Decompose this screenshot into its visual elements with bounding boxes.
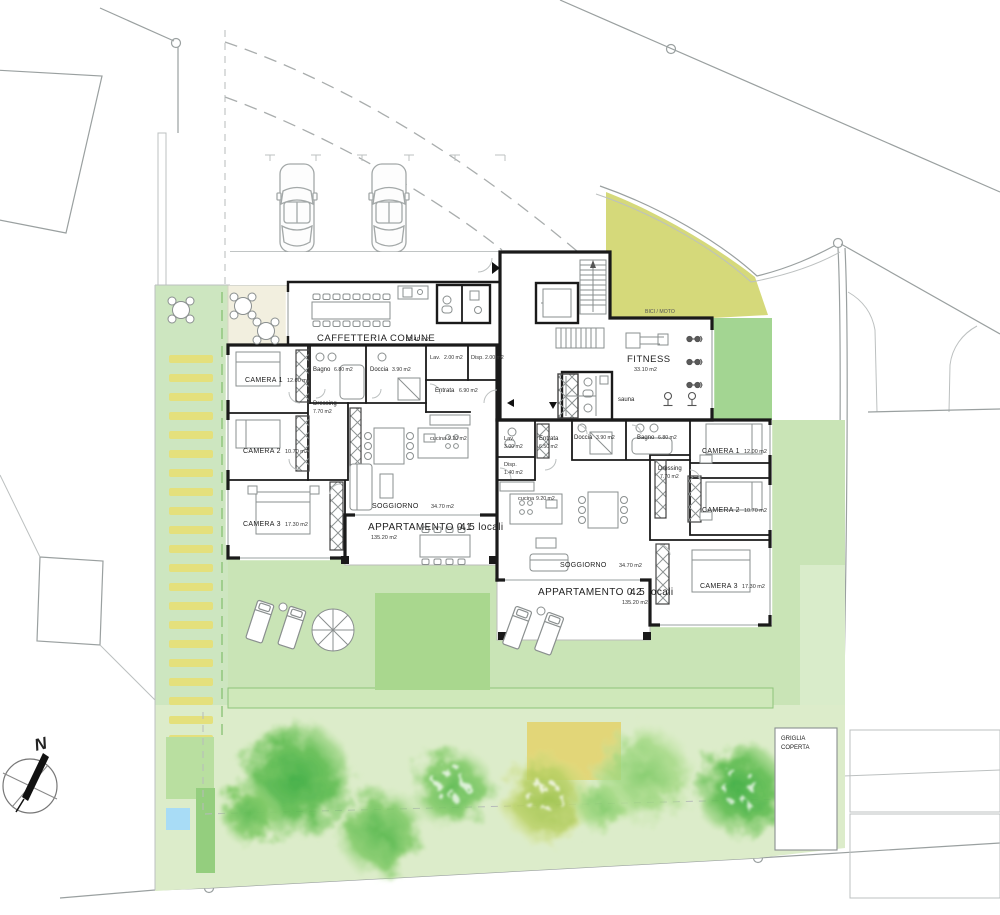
terrace-table bbox=[420, 535, 470, 557]
apt1-cucina-label: cucina bbox=[430, 436, 447, 442]
apt2-cucina-label: cucina bbox=[518, 496, 535, 502]
bed-icon bbox=[236, 420, 280, 448]
apt2-size: 4.5 locali bbox=[630, 587, 673, 598]
apt2-camera3-label: CAMERA 3 bbox=[700, 583, 738, 590]
apt1-cucina-area: 9.20 m2 bbox=[448, 436, 467, 442]
sauna-label: sauna bbox=[618, 397, 635, 403]
apt2-bagno-area: 6.80 m2 bbox=[658, 435, 677, 441]
apt1-doccia-label: Doccia bbox=[370, 367, 389, 373]
griglia-coperta-box: GRIGLIA COPERTA bbox=[775, 728, 1000, 898]
apt2-camera2-label: CAMERA 2 bbox=[702, 507, 740, 514]
apt2-doccia-area: 3.90 m2 bbox=[596, 435, 615, 441]
apt2-bagno-label: Bagno bbox=[637, 435, 655, 441]
apt2-soggiorno-label: SOGGIORNO bbox=[560, 562, 607, 569]
tree-icon bbox=[218, 783, 282, 847]
apt2-entrata-area: 6.50 m2 bbox=[539, 444, 558, 450]
apt1-entrata-label: Entrata bbox=[435, 388, 455, 394]
bici-moto-label: BICI / MOTO bbox=[645, 309, 675, 315]
apt1-soggiorno-label: SOGGIORNO bbox=[372, 503, 419, 510]
kitchen-counter bbox=[430, 415, 470, 425]
parking-stall-marks bbox=[265, 155, 505, 161]
apt2-camera1-label: CAMERA 1 bbox=[702, 448, 740, 455]
fitness-label: FITNESS bbox=[627, 354, 671, 365]
site-plan-drawing: GRIGLIA COPERTA N CAFFETTERIA COMUNE 32.… bbox=[0, 0, 1000, 915]
long-table bbox=[312, 302, 390, 319]
apt1-bagno-label: Bagno bbox=[313, 367, 331, 373]
apt1-size: 4.5 locali bbox=[460, 522, 503, 533]
apt1-dressing-area: 7.70 m2 bbox=[313, 409, 332, 415]
apt1-camera1-area: 12.00 m2 bbox=[287, 378, 310, 384]
apt1-soggiorno-area: 34.70 m2 bbox=[431, 504, 454, 510]
apt1-lav-area: 2.00 m2 bbox=[444, 355, 463, 361]
apt2-disp-area: 1.40 m2 bbox=[504, 470, 523, 476]
apt2-lav-area: 3.00 m2 bbox=[504, 444, 523, 450]
apt2-camera3-area: 17.30 m2 bbox=[742, 584, 765, 590]
apt1-doccia-area: 3.90 m2 bbox=[392, 367, 411, 373]
apt1-camera2-label: CAMERA 2 bbox=[243, 448, 281, 455]
caffetteria-area: 32.40 m2 bbox=[406, 337, 429, 343]
sink-icon bbox=[316, 353, 324, 361]
kitchen-island bbox=[418, 428, 468, 458]
bed-icon bbox=[706, 482, 762, 510]
apt2-soggiorno-area: 34.70 m2 bbox=[619, 563, 642, 569]
apt1-total-area: 135.20 m2 bbox=[371, 535, 397, 541]
dining-table bbox=[588, 492, 618, 528]
apt1-camera3-label: CAMERA 3 bbox=[243, 521, 281, 528]
apt1-camera3-area: 17.30 m2 bbox=[285, 522, 308, 528]
griglia-label-line2: COPERTA bbox=[781, 745, 809, 751]
apt1-title: APPARTAMENTO 0.1 bbox=[368, 522, 472, 533]
north-arrow: N bbox=[3, 733, 57, 813]
dining-table bbox=[374, 428, 404, 464]
apt1-camera2-area: 10.70 m2 bbox=[285, 449, 308, 455]
tree-icon bbox=[570, 775, 630, 835]
apt1-camera1-label: CAMERA 1 bbox=[245, 377, 283, 384]
car-icon bbox=[277, 164, 317, 252]
apt1-entrata-area: 6.90 m2 bbox=[459, 388, 478, 394]
apt1-lav-label: Lav. bbox=[430, 355, 441, 361]
apt1-dressing-label: Dressing bbox=[313, 401, 337, 407]
sofa-icon bbox=[350, 464, 372, 510]
parasol-icon bbox=[312, 609, 354, 651]
north-label: N bbox=[32, 733, 49, 755]
parking-area bbox=[230, 155, 608, 252]
car-icon bbox=[369, 164, 409, 252]
apt2-disp-label: Disp. bbox=[504, 462, 517, 468]
apt2-entrata-label: Entrata bbox=[539, 436, 559, 442]
apt2-cucina-area: 9.20 m2 bbox=[536, 496, 555, 502]
apt2-title: APPARTAMENTO 0.2 bbox=[538, 587, 642, 598]
apt2-doccia-label: Doccia bbox=[574, 435, 593, 441]
kitchen-counter bbox=[500, 482, 534, 491]
apt1-disp-area: 2.00 m2 bbox=[485, 355, 504, 361]
apt2-dressing-area: 7.70 m2 bbox=[660, 474, 679, 480]
apt1-bagno-area: 6.80 m2 bbox=[334, 367, 353, 373]
griglia-label-line1: GRIGLIA bbox=[781, 736, 805, 742]
apt2-dressing-label: Dressing bbox=[658, 466, 682, 472]
tree-icon bbox=[408, 744, 496, 832]
apt2-total-area: 135.20 m2 bbox=[622, 600, 648, 606]
fitness-area: 33.10 m2 bbox=[634, 367, 657, 373]
apt2-lav-label: Lav. bbox=[504, 436, 515, 442]
apt2-camera1-area: 12.00 m2 bbox=[744, 449, 767, 455]
apt2-camera2-area: 10.70 m2 bbox=[744, 508, 767, 514]
apt1-disp-label: Disp. bbox=[471, 355, 484, 361]
site-plan: GRIGLIA COPERTA N CAFFETTERIA COMUNE 32.… bbox=[0, 0, 1000, 915]
pond bbox=[166, 808, 190, 830]
